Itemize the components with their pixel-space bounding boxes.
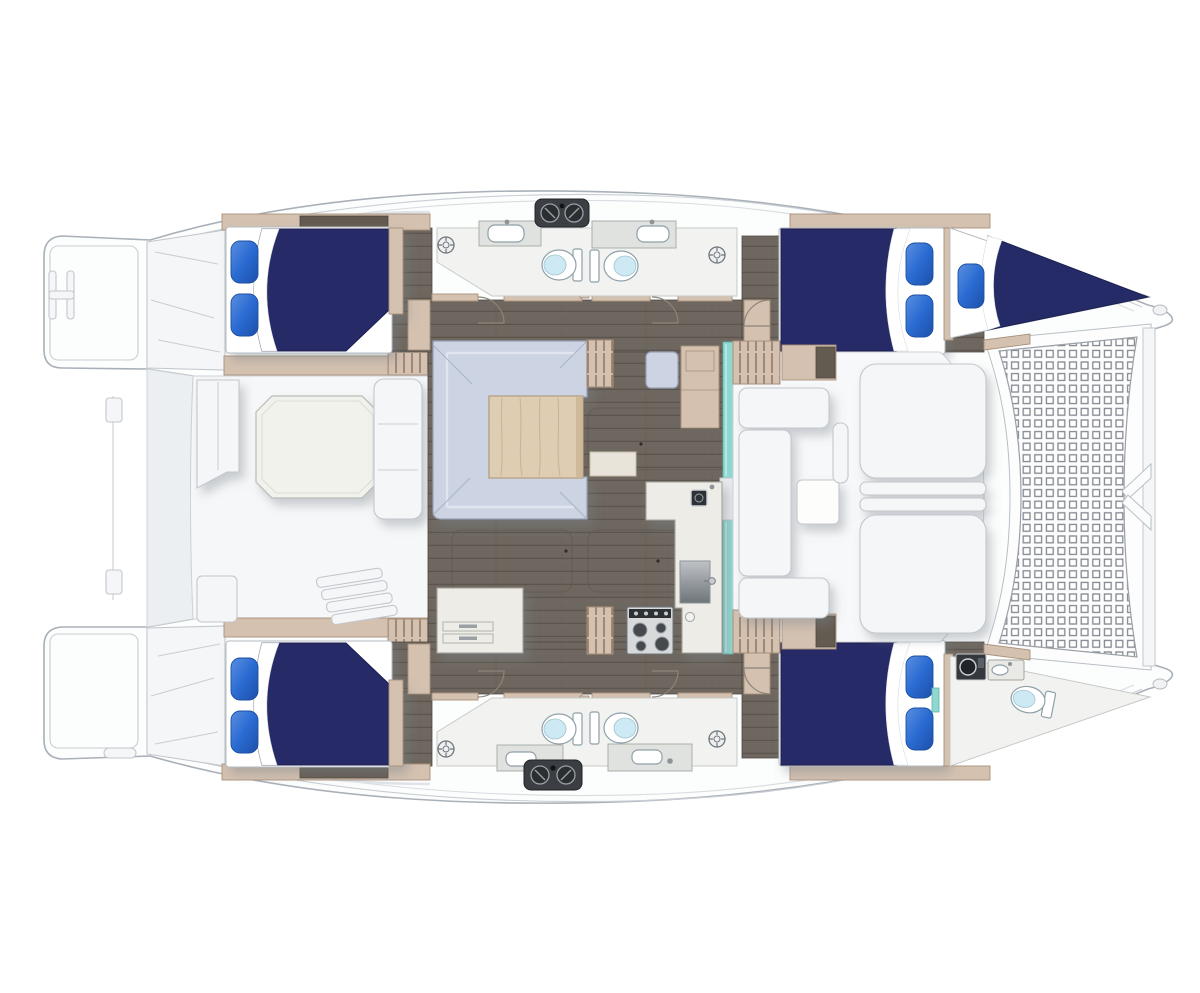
sunpad-port xyxy=(860,364,986,478)
floor-dot xyxy=(564,549,567,552)
davit-fitting-stbd xyxy=(106,570,122,594)
deck-grate-port xyxy=(733,341,780,384)
hull-stairs-stbd xyxy=(587,607,613,654)
shower-drain xyxy=(709,247,725,263)
dinghy-davits: Dinghy davit rail xyxy=(106,396,122,600)
platform-stbd-handle xyxy=(104,748,136,758)
pillow xyxy=(231,658,258,700)
transom-steps-stbd xyxy=(147,626,225,766)
sink xyxy=(488,225,524,242)
davit-fitting-port xyxy=(106,398,122,422)
fwd-bench-port xyxy=(739,388,829,428)
floor-dot xyxy=(639,442,642,445)
floor-plan-canvas: Catamaran hull outline Port swim platfor… xyxy=(0,0,1200,993)
forward-sunpads xyxy=(860,364,986,633)
pillow xyxy=(906,708,933,750)
mast-post: Mast post xyxy=(833,423,848,483)
winch-pod-port: Port deck winch pod xyxy=(535,199,589,227)
winch-pod-stbd: Starboard deck winch pod xyxy=(524,760,582,790)
pillow xyxy=(231,711,258,753)
bed-foot-locker xyxy=(389,680,403,766)
fwd-cocktail-table xyxy=(797,480,839,524)
faucet xyxy=(1008,662,1012,666)
stove: Four-burner stove xyxy=(627,607,673,654)
cockpit-table xyxy=(256,396,378,498)
floor-dot xyxy=(656,559,659,562)
galley-round-sink xyxy=(686,613,695,622)
cabin-stbd-fwd: Starboard forward double cabin xyxy=(779,640,945,766)
cabin-port-aft: Port aft double cabin xyxy=(226,227,403,353)
pillow xyxy=(231,241,258,283)
shower-drain xyxy=(438,237,454,253)
shower-drain xyxy=(709,731,725,747)
pillow xyxy=(906,295,933,337)
faucet xyxy=(667,758,673,764)
galley-faucet xyxy=(710,485,715,490)
pillow xyxy=(906,243,933,285)
wardrobe-port-aft xyxy=(408,300,430,350)
toilet-port-aft xyxy=(542,249,582,281)
bed-stbd-fwd-duvet xyxy=(781,643,896,765)
forward-cockpit: Forward cockpit lounge Mast post xyxy=(733,341,986,653)
transom-deck-strip xyxy=(147,369,193,627)
table-edge-shade xyxy=(576,396,583,478)
faucet xyxy=(650,220,655,225)
cockpit-seat-aft-corner xyxy=(197,576,237,622)
pillow xyxy=(906,656,933,698)
bow-crossbeam: Bow crossbeam xyxy=(1143,328,1155,666)
faucet xyxy=(505,220,510,225)
sink xyxy=(992,665,1008,675)
shower-drain xyxy=(438,741,454,757)
toilet-port-fwd xyxy=(590,250,638,282)
transom-steps-port xyxy=(147,230,225,370)
deck-box-stbd-lid xyxy=(816,616,835,647)
hull-stairs-port xyxy=(587,340,613,387)
sink xyxy=(632,750,662,764)
bed-port-fwd-duvet xyxy=(781,229,896,351)
wardrobe-stbd-aft xyxy=(408,644,430,694)
bow-tip-fitting-stbd xyxy=(1153,679,1167,689)
aft-cockpit: Aft cockpit with octagonal table Port co… xyxy=(191,340,429,654)
toilet-stbd-aft xyxy=(542,713,582,745)
cabin-port-fwd: Port forward double cabin xyxy=(779,228,945,354)
side-shelf-port-fwd xyxy=(790,214,990,228)
cabin-stbd-aft: Starboard aft double cabin xyxy=(226,641,403,767)
shower-glass xyxy=(932,688,939,712)
salon-step-landing xyxy=(590,452,636,476)
catamaran-floor-plan: Catamaran hull outline Port swim platfor… xyxy=(0,0,1200,993)
sunpad-strip xyxy=(860,482,986,495)
nav-cabinet xyxy=(681,346,719,428)
pillow xyxy=(958,264,984,308)
heads-stbd: Starboard aft head (WC) xyxy=(437,698,737,771)
drawer-handle xyxy=(459,625,477,629)
fwd-bench-center xyxy=(739,430,791,576)
galley-aft-cabinet xyxy=(437,588,523,653)
side-shelf-stbd-fwd xyxy=(790,766,990,780)
heads-port: Port aft head (WC) xyxy=(437,220,737,296)
toilet-stbd-fwd xyxy=(590,712,638,744)
sunpad-stbd xyxy=(860,515,986,633)
deck-box-port-lid xyxy=(816,347,835,378)
sink xyxy=(637,226,669,242)
forward-lounge xyxy=(739,388,839,618)
sunpad-strip xyxy=(860,498,986,511)
drawer-handle xyxy=(459,637,477,641)
nav-seat: Navigation seat and cabinet xyxy=(646,352,678,388)
bow-tip-fitting-port xyxy=(1153,305,1167,315)
bed-foot-locker xyxy=(389,228,403,314)
pillow xyxy=(231,294,258,336)
fwd-bench-stbd xyxy=(739,578,829,618)
bow-head-sink-unit xyxy=(956,654,986,680)
galley-sink xyxy=(691,490,707,506)
cockpit-chaise xyxy=(374,379,422,519)
bow-area: Bow trampoline net Bow crossbeam Foresta… xyxy=(984,305,1167,689)
dinette-table xyxy=(489,396,583,478)
galley-fridge xyxy=(680,561,715,603)
